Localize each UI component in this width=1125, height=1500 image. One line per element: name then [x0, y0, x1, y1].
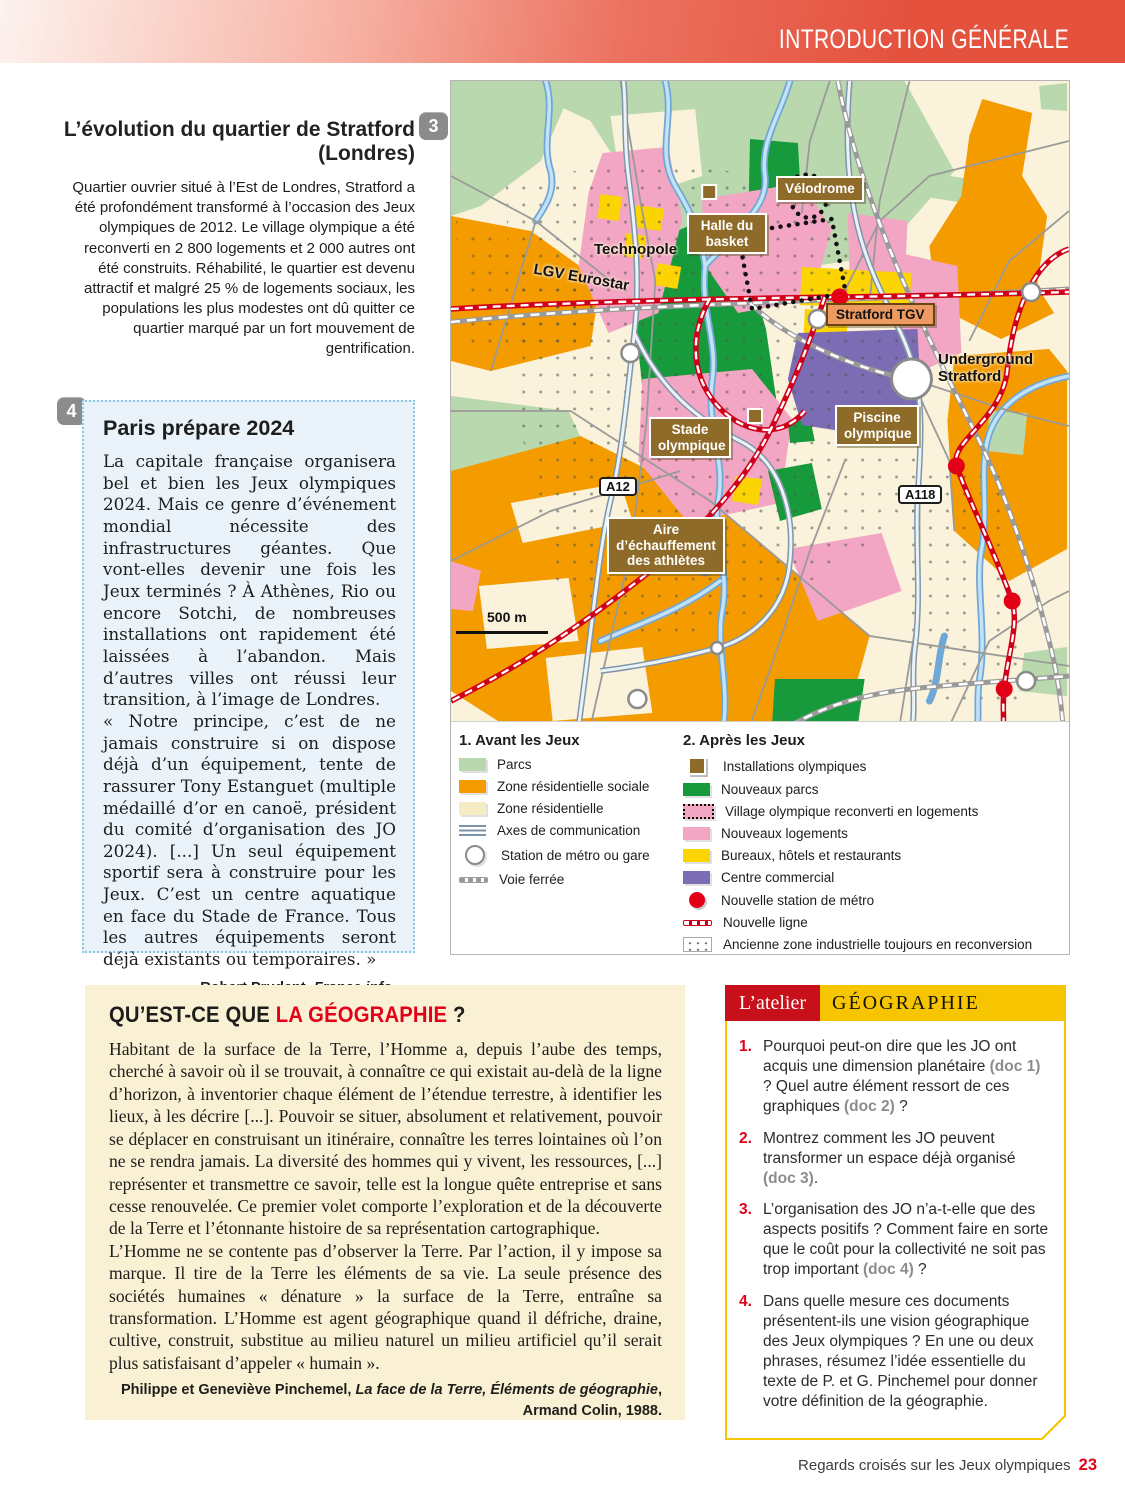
legend-item-label: Voie ferrée — [499, 872, 564, 887]
new-metro-station-icon — [689, 892, 705, 908]
legend-item: Voie ferrée — [459, 872, 677, 887]
footer-chapter-title: Regards croisés sur les Jeux olympiques — [798, 1457, 1071, 1474]
geography-paragraph-2: L’Homme ne se contente pas d’observer la… — [109, 1240, 662, 1375]
legend-item: Bureaux, hôtels et restaurants — [683, 848, 1065, 863]
doc-reference: (doc 3) — [763, 1170, 814, 1187]
legend-item: Station de métro ou gare — [459, 845, 677, 865]
question-number: 1. — [739, 1037, 752, 1057]
communication-axes-icon — [459, 825, 486, 836]
legend-item-label: Station de métro ou gare — [501, 848, 650, 863]
map-label-halle-du-basket: Halle du basket — [687, 213, 767, 254]
legend-item: Ancienne zone industrielle toujours en r… — [683, 937, 1065, 952]
legend-item: Nouvelle station de métro — [683, 892, 1065, 908]
doc3-title: L’évolution du quartier de Stratford (Lo… — [60, 118, 415, 166]
atelier-question-4: 4.Dans quelle mesure ces documents prése… — [739, 1292, 1050, 1413]
legend-before-title: 1. Avant les Jeux — [459, 732, 677, 749]
map-label-a118: A118 — [898, 485, 942, 504]
legend-item-label: Parcs — [497, 757, 532, 772]
atelier-subject: GÉOGRAPHIE — [820, 985, 1066, 1021]
legend-item-label: Nouvelle ligne — [723, 915, 808, 930]
geography-title: QU’EST-CE QUE LA GÉOGRAPHIE ? — [109, 1002, 466, 1028]
doc3-section: L’évolution du quartier de Stratford (Lo… — [60, 118, 415, 359]
legend-item-label: Zone résidentielle sociale — [497, 779, 649, 794]
map-drawing — [451, 81, 1069, 721]
geography-title-red: LA GÉOGRAPHIE — [276, 1002, 447, 1027]
question-text: Pourquoi peut-on dire que les JO ont acq… — [763, 1038, 1016, 1075]
legend-item-label: Axes de communication — [497, 823, 640, 838]
legend-item: Axes de communication — [459, 823, 677, 838]
geography-paragraph-1: Habitant de la surface de la Terre, l’Ho… — [109, 1038, 662, 1240]
map-label-technopole: Technopole — [594, 241, 677, 258]
map-label-a12: A12 — [599, 477, 637, 496]
question-text: Montrez comment les JO peuvent transform… — [763, 1130, 1015, 1167]
legend-item: Zone résidentielle — [459, 801, 677, 816]
doc-reference: (doc 4) — [863, 1261, 914, 1278]
doc-reference: (doc 1) — [990, 1058, 1041, 1075]
parks-swatch-icon — [459, 758, 486, 771]
map-scale-bar — [456, 631, 548, 634]
legend-item-label: Centre commercial — [721, 870, 834, 885]
legend-item-label: Nouveaux parcs — [721, 782, 819, 797]
metro-station-icon — [465, 845, 485, 865]
legend-item-label: Ancienne zone industrielle toujours en r… — [723, 937, 1032, 952]
question-text: ? — [895, 1098, 908, 1115]
atelier-box: L’atelier GÉOGRAPHIE 1.Pourquoi peut-on … — [725, 985, 1066, 1440]
page-header-band: INTRODUCTION GÉNÉRALE — [0, 0, 1125, 63]
new-parks-swatch-icon — [683, 783, 710, 796]
new-housing-swatch-icon — [683, 827, 710, 840]
question-number: 3. — [739, 1200, 752, 1220]
offices-hotels-swatch-icon — [683, 849, 710, 862]
stratford-map-figure: Vélodrome Halle du basket Technopole LGV… — [450, 80, 1070, 955]
geography-body: Habitant de la surface de la Terre, l’Ho… — [109, 1038, 662, 1374]
geography-attrib-authors: Philippe et Geneviève Pinchemel, — [121, 1382, 356, 1398]
atelier-header: L’atelier GÉOGRAPHIE — [725, 985, 1066, 1021]
atelier-label: L’atelier — [725, 985, 820, 1021]
industrial-zone-swatch-icon — [683, 937, 712, 952]
question-text: ? — [914, 1261, 927, 1278]
legend-item: Parcs — [459, 757, 677, 772]
textbook-page: INTRODUCTION GÉNÉRALE 3 L’évolution du q… — [0, 0, 1125, 1500]
doc-reference: (doc 2) — [844, 1098, 895, 1115]
geography-title-black: QU’EST-CE QUE — [109, 1002, 276, 1027]
question-text: . — [814, 1170, 818, 1187]
atelier-body-border: 1.Pourquoi peut-on dire que les JO ont a… — [725, 1019, 1066, 1440]
map-label-velodrome: Vélodrome — [776, 176, 864, 202]
legend-item-label: Zone résidentielle — [497, 801, 604, 816]
question-number: 2. — [739, 1129, 752, 1149]
legend-item-label: Nouveaux logements — [721, 826, 848, 841]
atelier-body: 1.Pourquoi peut-on dire que les JO ont a… — [727, 1021, 1064, 1438]
legend-item: Zone résidentielle sociale — [459, 779, 677, 794]
social-residential-swatch-icon — [459, 780, 486, 793]
geography-definition-box: QU’EST-CE QUE LA GÉOGRAPHIE ? Habitant d… — [85, 985, 685, 1420]
doc4-title: Paris prépare 2024 — [103, 416, 396, 441]
legend-item: Village olympique reconverti en logement… — [683, 804, 1065, 819]
map-label-stratford-tgv: Stratford TGV — [826, 303, 935, 326]
atelier-question-1: 1.Pourquoi peut-on dire que les JO ont a… — [739, 1037, 1050, 1118]
legend-item: Centre commercial — [683, 870, 1065, 885]
legend-item: Nouveaux parcs — [683, 782, 1065, 797]
legend-before-column: 1. Avant les Jeux Parcs Zone résidentiel… — [459, 732, 677, 894]
residential-swatch-icon — [459, 802, 486, 815]
new-line-icon — [683, 920, 712, 926]
map-label-piscine-olympique: Piscine olympique — [835, 405, 919, 446]
atelier-question-2: 2.Montrez comment les JO peuvent transfo… — [739, 1129, 1050, 1189]
legend-item-label: Bureaux, hôtels et restaurants — [721, 848, 901, 863]
map-scale-label: 500 m — [487, 609, 527, 625]
doc3-body: Quartier ouvrier situé à l’Est de Londre… — [60, 178, 415, 359]
underground-stratford-station — [892, 359, 932, 399]
legend-item-label: Village olympique reconverti en logement… — [725, 804, 978, 819]
map-label-aire-echauffement: Aire d’échauffement des athlètes — [607, 517, 725, 574]
olympic-village-swatch-icon — [683, 804, 714, 819]
page-header-title: INTRODUCTION GÉNÉRALE — [779, 24, 1069, 55]
footer-page-number: 23 — [1079, 1456, 1097, 1474]
stratford-map: Vélodrome Halle du basket Technopole LGV… — [451, 81, 1069, 722]
atelier-question-3: 3.L’organisation des JO n’a-t-elle que d… — [739, 1200, 1050, 1281]
question-text: Dans quelle mesure ces documents présent… — [763, 1293, 1038, 1411]
map-label-stade-olympique: Stade olympique — [649, 417, 731, 458]
geography-attribution: Philippe et Geneviève Pinchemel, La face… — [109, 1380, 662, 1421]
doc4-section: Paris prépare 2024 La capitale française… — [82, 400, 415, 953]
legend-item: Nouveaux logements — [683, 826, 1065, 841]
olympic-installation-icon — [688, 757, 706, 775]
legend-after-title: 2. Après les Jeux — [683, 732, 1065, 749]
question-number: 4. — [739, 1292, 752, 1312]
railway-icon — [459, 877, 488, 883]
legend-after-column: 2. Après les Jeux Installations olympiqu… — [683, 732, 1065, 959]
page-footer: Regards croisés sur les Jeux olympiques2… — [798, 1456, 1097, 1475]
mall-swatch-icon — [683, 871, 710, 884]
legend-item-label: Installations olympiques — [723, 759, 866, 774]
doc3-number-badge: 3 — [419, 112, 448, 140]
legend-item: Installations olympiques — [683, 757, 1065, 775]
map-label-underground-stratford: Underground Stratford — [938, 351, 1030, 385]
doc4-body: La capitale française organisera bel et … — [103, 451, 396, 971]
legend-item: Nouvelle ligne — [683, 915, 1065, 930]
geography-title-question: ? — [447, 1002, 465, 1027]
legend-item-label: Nouvelle station de métro — [721, 893, 874, 908]
geography-attrib-book: La face de la Terre, Éléments de géograp… — [356, 1382, 658, 1398]
map-legend: 1. Avant les Jeux Parcs Zone résidentiel… — [451, 722, 1069, 954]
